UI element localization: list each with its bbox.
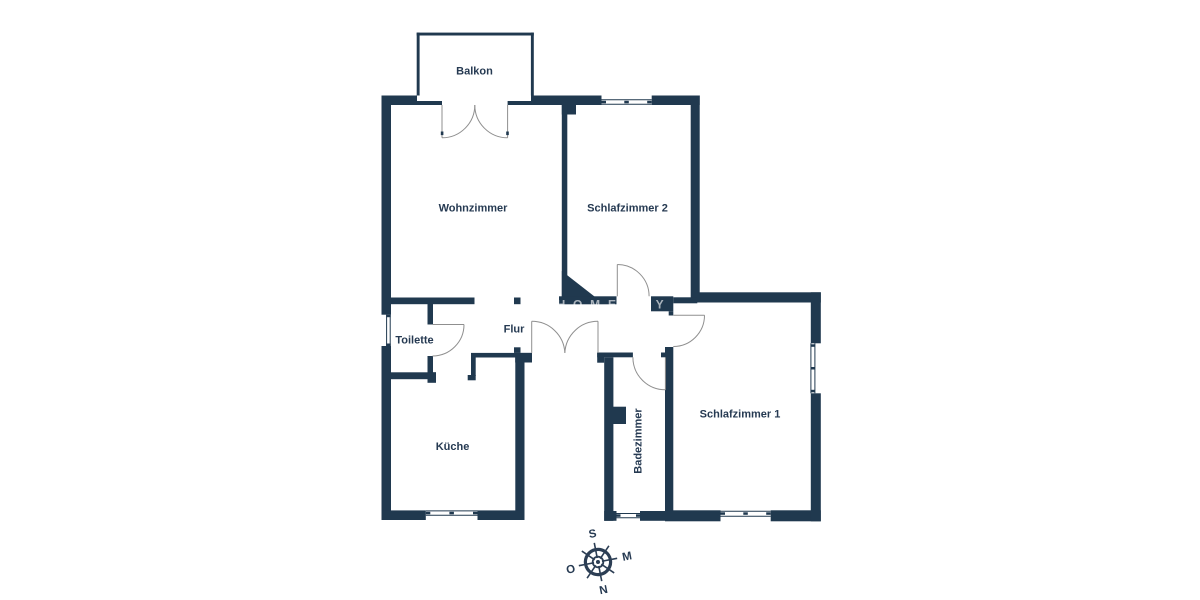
svg-text:Toilette: Toilette — [395, 335, 433, 347]
svg-text:Badezimmer: Badezimmer — [633, 408, 645, 474]
svg-text:HOMEDAY: HOMEDAY — [557, 298, 672, 312]
svg-text:Schlafzimmer 2: Schlafzimmer 2 — [587, 203, 668, 215]
svg-text:Flur: Flur — [504, 324, 525, 336]
svg-text:Schlafzimmer 1: Schlafzimmer 1 — [700, 409, 781, 421]
svg-text:Balkon: Balkon — [456, 66, 493, 78]
svg-text:Küche: Küche — [436, 441, 470, 453]
svg-text:Wohnzimmer: Wohnzimmer — [439, 203, 509, 215]
